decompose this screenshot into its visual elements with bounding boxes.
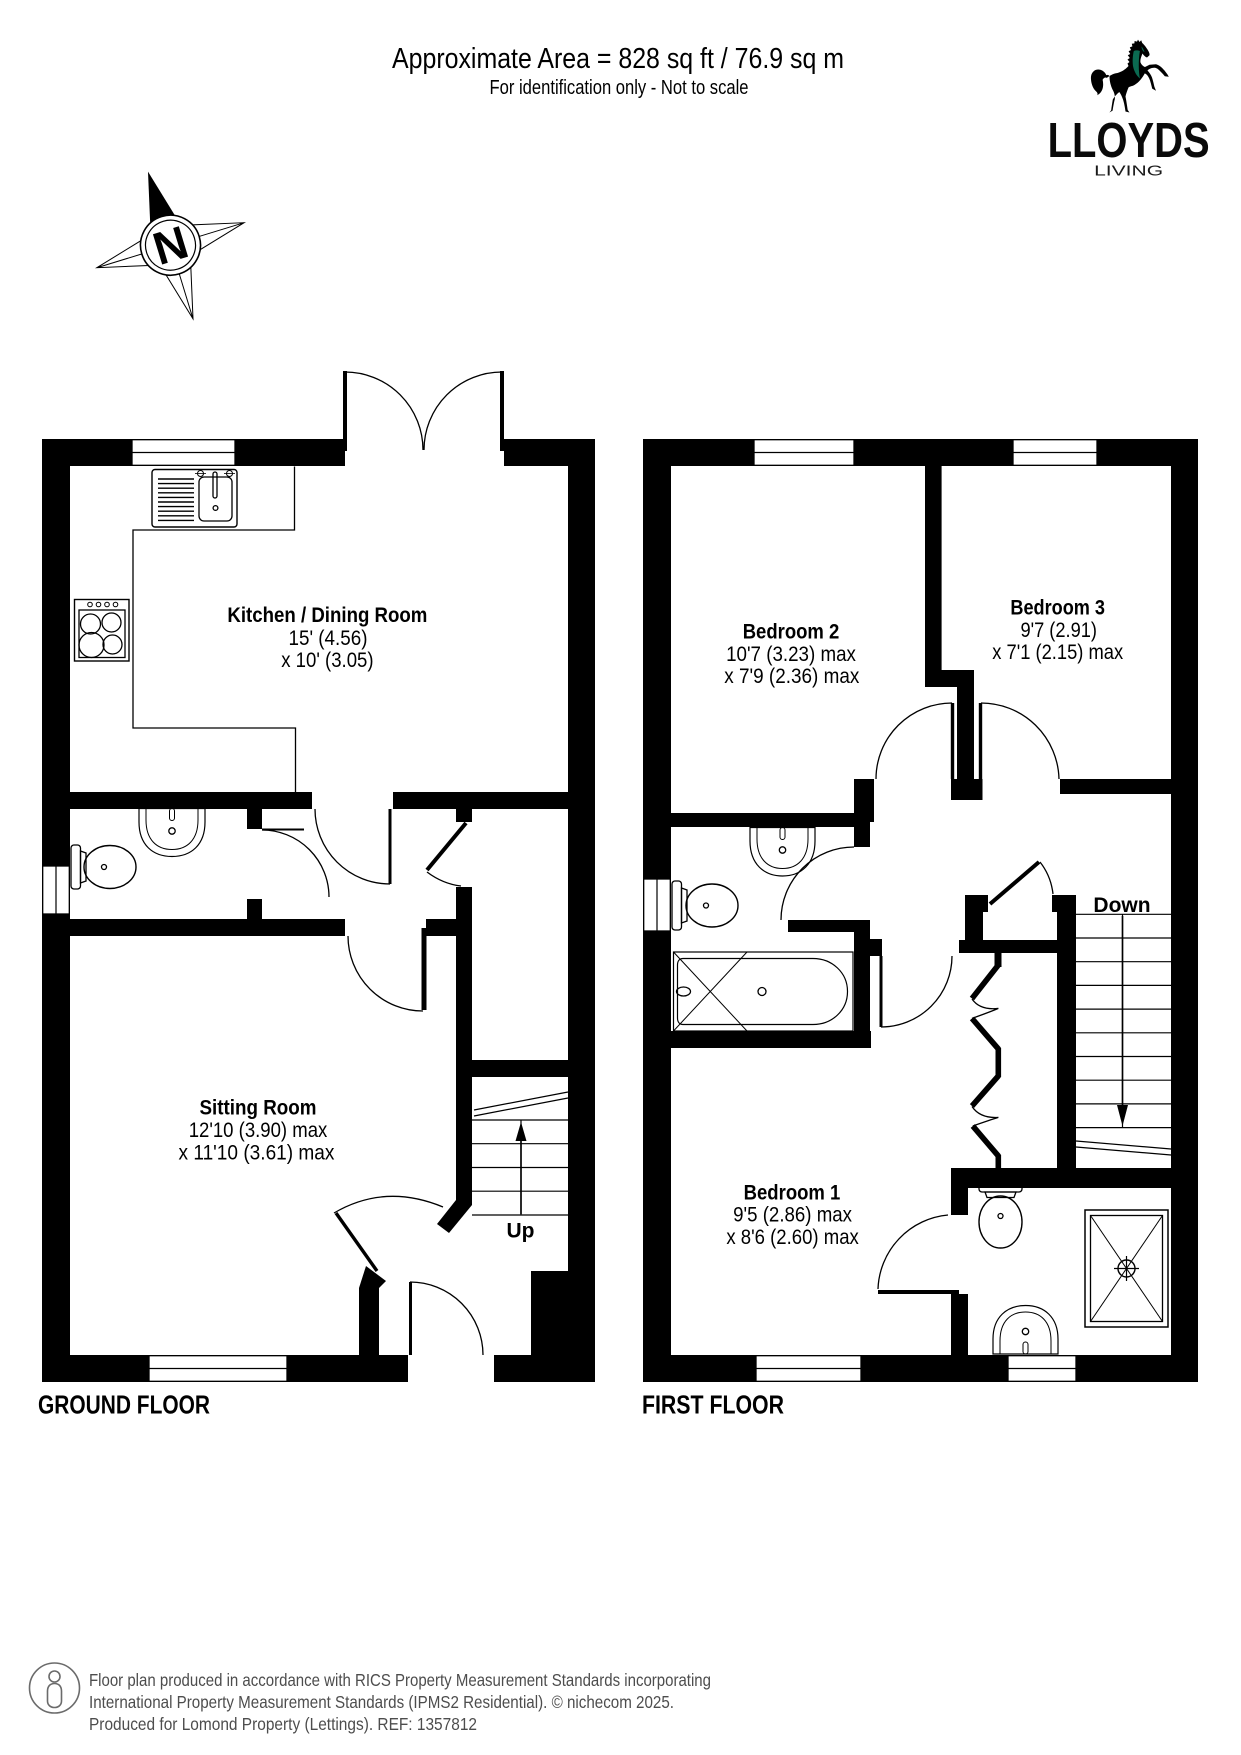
svg-text:For identification only - Not: For identification only - Not to scale	[490, 77, 749, 99]
svg-text:9'5 (2.86) max: 9'5 (2.86) max	[733, 1204, 852, 1227]
svg-text:International Property Measure: International Property Measurement Stand…	[89, 1692, 674, 1712]
svg-text:12'10 (3.90) max: 12'10 (3.90) max	[189, 1119, 328, 1142]
svg-text:Floor plan produced in accorda: Floor plan produced in accordance with R…	[89, 1670, 711, 1690]
svg-text:LIVING: LIVING	[1094, 163, 1163, 180]
svg-text:Up: Up	[507, 1220, 535, 1243]
svg-text:LLOYDS: LLOYDS	[1048, 114, 1210, 168]
svg-text:Sitting Room: Sitting Room	[200, 1096, 317, 1120]
svg-text:x 8'6 (2.60) max: x 8'6 (2.60) max	[726, 1226, 859, 1249]
svg-text:Down: Down	[1093, 894, 1150, 917]
svg-text:Bedroom 3: Bedroom 3	[1010, 596, 1105, 620]
svg-text:x 7'9 (2.36) max: x 7'9 (2.36) max	[724, 665, 859, 688]
svg-text:Kitchen / Dining Room: Kitchen / Dining Room	[227, 603, 427, 627]
svg-text:Bedroom 1: Bedroom 1	[744, 1181, 841, 1205]
svg-text:10'7 (3.23) max: 10'7 (3.23) max	[726, 643, 856, 666]
svg-text:GROUND FLOOR: GROUND FLOOR	[38, 1390, 210, 1420]
svg-text:x 11'10 (3.61) max: x 11'10 (3.61) max	[179, 1142, 335, 1165]
svg-text:Approximate Area = 828 sq ft /: Approximate Area = 828 sq ft / 76.9 sq m	[392, 43, 844, 75]
svg-text:x 7'1 (2.15) max: x 7'1 (2.15) max	[992, 641, 1123, 664]
svg-text:15' (4.56): 15' (4.56)	[289, 627, 368, 650]
svg-text:FIRST FLOOR: FIRST FLOOR	[642, 1390, 784, 1420]
svg-text:9'7 (2.91): 9'7 (2.91)	[1020, 619, 1097, 642]
svg-text:Produced for Lomond Property (: Produced for Lomond Property (Lettings).…	[89, 1714, 477, 1734]
svg-text:Bedroom 2: Bedroom 2	[743, 620, 840, 644]
svg-text:x 10' (3.05): x 10' (3.05)	[281, 649, 373, 672]
